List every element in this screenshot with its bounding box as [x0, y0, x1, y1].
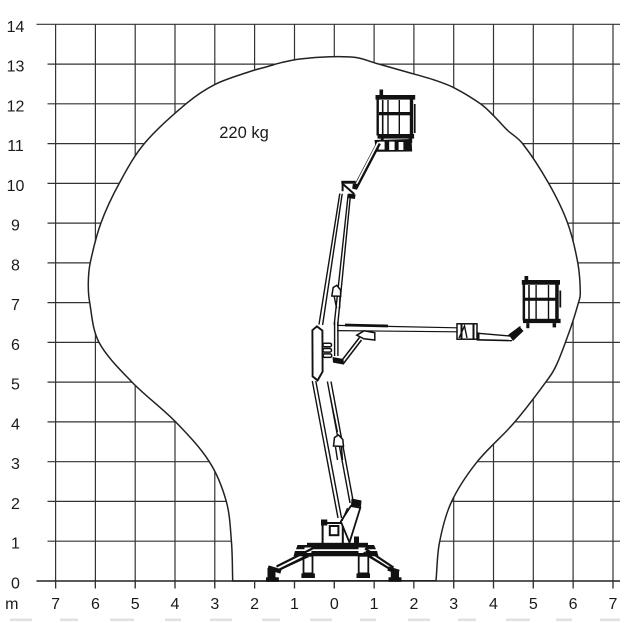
svg-text:220 kg: 220 kg — [219, 124, 269, 142]
svg-text:4: 4 — [489, 596, 498, 613]
svg-text:5: 5 — [11, 377, 20, 394]
svg-text:4: 4 — [171, 596, 180, 613]
svg-text:0: 0 — [330, 596, 339, 613]
svg-text:12: 12 — [7, 98, 25, 115]
svg-text:1: 1 — [370, 596, 379, 613]
svg-text:7: 7 — [609, 596, 618, 613]
svg-text:3: 3 — [11, 456, 20, 473]
svg-text:6: 6 — [11, 337, 20, 354]
svg-text:9: 9 — [11, 218, 20, 235]
svg-text:14: 14 — [7, 19, 25, 36]
svg-text:7: 7 — [11, 297, 20, 314]
svg-text:5: 5 — [131, 596, 140, 613]
svg-text:7: 7 — [51, 596, 60, 613]
svg-text:13: 13 — [7, 59, 25, 76]
svg-text:5: 5 — [529, 596, 538, 613]
svg-text:2: 2 — [11, 496, 20, 513]
svg-text:3: 3 — [210, 596, 219, 613]
svg-text:8: 8 — [11, 257, 20, 274]
svg-text:4: 4 — [11, 416, 20, 433]
svg-text:6: 6 — [569, 596, 578, 613]
svg-text:11: 11 — [7, 138, 24, 155]
svg-text:1: 1 — [290, 596, 299, 613]
svg-text:6: 6 — [91, 596, 100, 613]
svg-text:2: 2 — [409, 596, 418, 613]
svg-text:2: 2 — [250, 596, 259, 613]
svg-text:10: 10 — [7, 178, 25, 195]
svg-text:0: 0 — [11, 576, 20, 593]
svg-text:1: 1 — [11, 536, 20, 553]
svg-text:3: 3 — [449, 596, 458, 613]
svg-text:m: m — [5, 596, 18, 613]
